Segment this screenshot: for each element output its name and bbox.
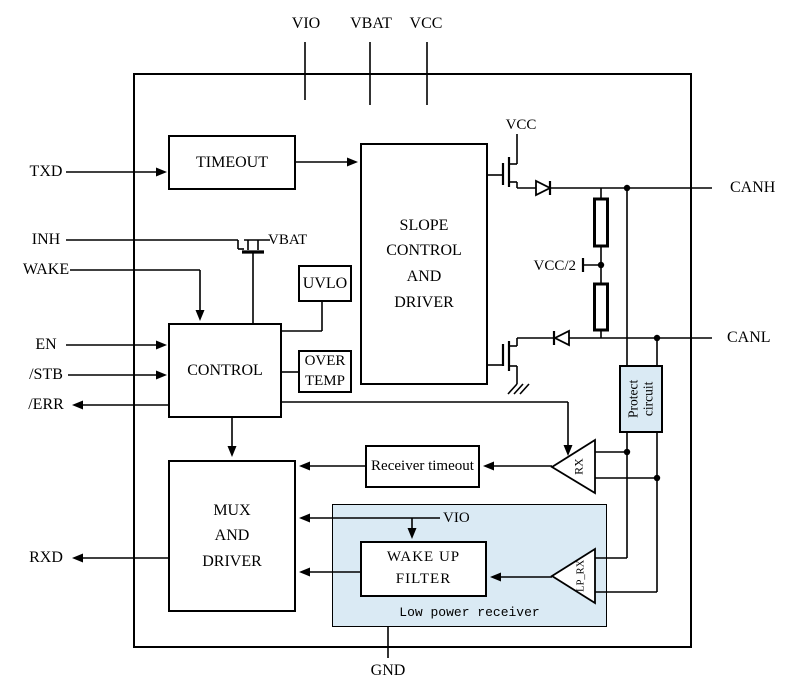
pin-wake: WAKE <box>18 260 74 280</box>
pin-err: /ERR <box>18 395 74 415</box>
pin-txd: TXD <box>18 162 74 182</box>
low-power-receiver-label: Low power receiver <box>333 604 606 623</box>
lp-rx-comparator-label-wrap: LP_RX <box>566 550 596 602</box>
control-label: CONTROL <box>187 359 263 382</box>
protect-circuit-block: Protect circuit <box>619 365 663 433</box>
pin-stb: /STB <box>18 365 74 385</box>
net-vcc-half: VCC/2 <box>518 256 576 276</box>
net-vio-internal: VIO <box>443 508 485 528</box>
rx-comparator-label-wrap: RX <box>564 441 594 493</box>
can-transceiver-block-diagram: TIMEOUT SLOPE CONTROL AND DRIVER UVLO CO… <box>0 0 804 694</box>
pin-vcc: VCC <box>401 14 451 34</box>
over-temp-block: OVER TEMP <box>298 350 352 393</box>
receiver-timeout-label: Receiver timeout <box>371 456 474 478</box>
slope-control-driver-block: SLOPE CONTROL AND DRIVER <box>360 143 488 385</box>
pin-en: EN <box>18 335 74 355</box>
pin-canh: CANH <box>730 178 790 198</box>
protect-circuit-label: Protect circuit <box>626 380 656 418</box>
slope-control-driver-label: SLOPE CONTROL AND DRIVER <box>386 213 462 315</box>
rx-label: RX <box>572 459 585 476</box>
receiver-timeout-block: Receiver timeout <box>365 445 480 488</box>
wake-up-filter-block: WAKE UP FILTER <box>360 541 487 597</box>
net-vcc-internal: VCC <box>496 115 546 135</box>
pin-canl: CANL <box>727 328 787 348</box>
wake-up-filter-label: WAKE UP FILTER <box>362 547 485 591</box>
timeout-block: TIMEOUT <box>168 135 296 190</box>
pin-vbat: VBAT <box>346 14 396 34</box>
control-block: CONTROL <box>168 323 282 418</box>
lp-rx-label: LP_RX <box>575 560 587 592</box>
timeout-label: TIMEOUT <box>196 151 268 174</box>
uvlo-label: UVLO <box>303 272 347 295</box>
uvlo-block: UVLO <box>298 265 352 302</box>
pin-vio: VIO <box>281 14 331 34</box>
mux-driver-block: MUX AND DRIVER <box>168 460 296 612</box>
mux-driver-label: MUX AND DRIVER <box>202 498 262 575</box>
pin-inh: INH <box>18 230 74 250</box>
net-vbat-internal: VBAT <box>268 230 322 250</box>
pin-rxd: RXD <box>18 548 74 568</box>
pin-gnd: GND <box>363 661 413 681</box>
over-temp-label: OVER TEMP <box>305 352 346 391</box>
